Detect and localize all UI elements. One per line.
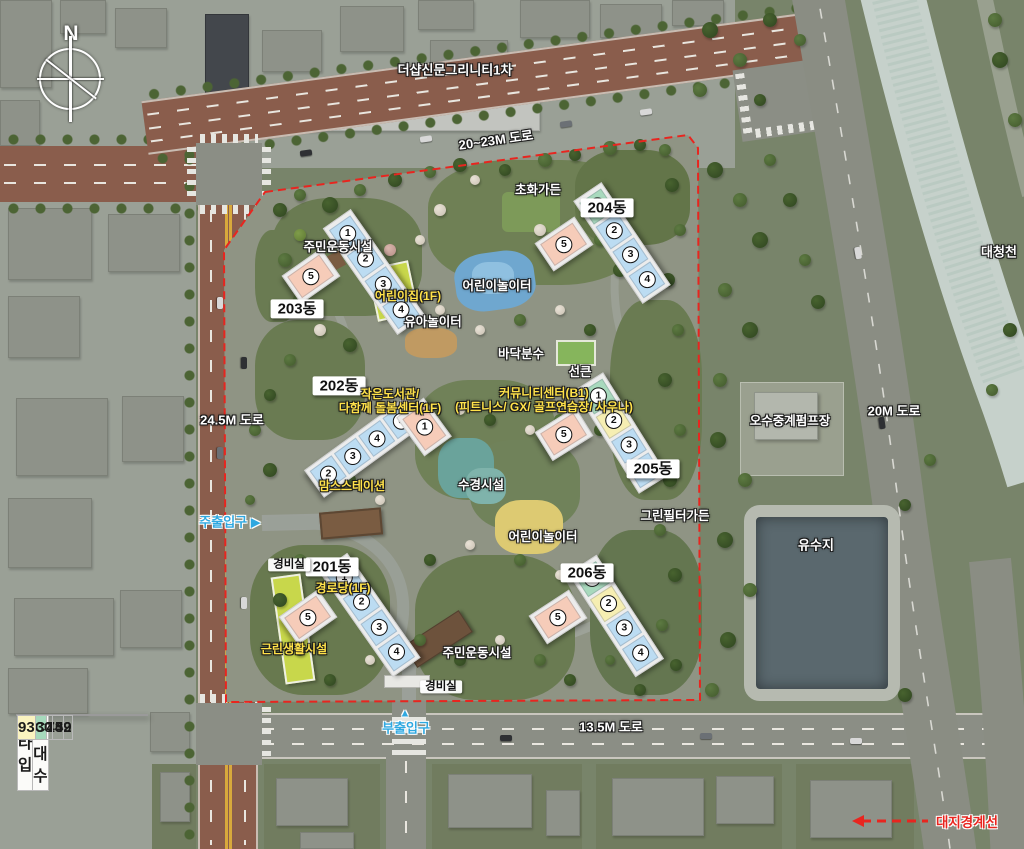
tree bbox=[720, 632, 736, 648]
label-river-daecheongcheon: 대청천 bbox=[981, 246, 1017, 261]
tree bbox=[764, 154, 776, 166]
unit-number-badge: 2 bbox=[599, 595, 616, 612]
tree bbox=[743, 583, 757, 597]
tree bbox=[414, 634, 426, 646]
label-guard-post-west: 경비실 bbox=[268, 558, 310, 571]
tree bbox=[499, 164, 511, 176]
car bbox=[217, 297, 223, 309]
tree bbox=[738, 473, 752, 487]
building-label-204: 204동 bbox=[581, 198, 634, 217]
label-pump-station: 오수중계펌프장 bbox=[750, 414, 831, 428]
tree bbox=[811, 295, 825, 309]
label-flower-garden: 초화가든 bbox=[515, 183, 561, 197]
tree bbox=[514, 314, 526, 326]
tree bbox=[475, 325, 485, 335]
car bbox=[217, 447, 223, 459]
label-small-library: 작은도서관/다함께 돌봄센터(1F) bbox=[339, 388, 442, 416]
tree bbox=[898, 688, 912, 702]
tree bbox=[484, 414, 496, 426]
car bbox=[500, 735, 512, 741]
tree bbox=[465, 540, 475, 550]
tree bbox=[1008, 113, 1022, 127]
tree bbox=[434, 204, 446, 216]
tree bbox=[514, 554, 526, 566]
compass: N bbox=[36, 22, 106, 122]
tree bbox=[659, 144, 671, 156]
label-sub-entrance-arrow-icon: ▲ bbox=[400, 708, 411, 721]
tree bbox=[924, 454, 936, 466]
tree bbox=[264, 389, 276, 401]
unit-number-badge: 3 bbox=[622, 247, 639, 264]
tree bbox=[1003, 323, 1017, 337]
tree bbox=[603, 141, 617, 155]
tree bbox=[384, 244, 396, 256]
tree bbox=[495, 635, 505, 645]
car bbox=[700, 733, 712, 739]
tree bbox=[783, 193, 797, 207]
tree bbox=[674, 424, 686, 436]
label-sports-facility-south: 주민운동시설 bbox=[442, 646, 511, 660]
tree bbox=[343, 338, 357, 352]
tree bbox=[710, 432, 726, 448]
tree bbox=[534, 654, 546, 666]
label-daycare: 어린이집(1F) bbox=[375, 290, 441, 304]
tree bbox=[584, 324, 596, 336]
unit-number-badge: 5 bbox=[300, 609, 317, 626]
label-neighbor-complex: 더샵신문그리니티1차 bbox=[398, 64, 513, 79]
unit-number-badge: 4 bbox=[369, 430, 386, 447]
tree bbox=[713, 373, 727, 387]
car bbox=[241, 597, 247, 609]
tree bbox=[702, 22, 718, 38]
label-floor-fountain: 바닥분수 bbox=[498, 347, 544, 361]
tree bbox=[654, 524, 666, 536]
unit-number-badge: 5 bbox=[550, 609, 567, 626]
tree bbox=[263, 463, 277, 477]
legend-row-93: 9330 bbox=[17, 715, 53, 740]
unit-number-badge: 3 bbox=[344, 447, 361, 464]
tree bbox=[674, 224, 686, 236]
sunken-area bbox=[556, 340, 596, 366]
tree bbox=[718, 283, 732, 297]
tree bbox=[424, 166, 436, 178]
unit-number-badge: 4 bbox=[388, 644, 405, 661]
label-toddler-playground: 유아놀이터 bbox=[404, 315, 462, 329]
tree bbox=[754, 94, 766, 106]
unit-number-badge: 2 bbox=[353, 594, 370, 611]
label-moms-station: 맘스스테이션 bbox=[319, 480, 385, 494]
tree bbox=[717, 532, 733, 548]
tree bbox=[742, 322, 758, 338]
tree bbox=[658, 373, 672, 387]
label-road-24-5m: 24.5M 도로 bbox=[200, 414, 264, 429]
tree bbox=[707, 162, 723, 178]
building-label-206: 206동 bbox=[561, 563, 614, 582]
tree bbox=[354, 184, 366, 196]
tree bbox=[294, 189, 306, 201]
unit-number-badge: 3 bbox=[620, 437, 637, 454]
tree bbox=[273, 203, 287, 217]
unit-number-badge: 3 bbox=[616, 620, 633, 637]
tree bbox=[555, 305, 565, 315]
tree bbox=[273, 593, 287, 607]
flower-garden-area bbox=[502, 192, 560, 232]
tree bbox=[693, 83, 707, 97]
unit-number-badge: 4 bbox=[638, 271, 655, 288]
label-sub-entrance: 부출입구 bbox=[382, 722, 430, 737]
tree bbox=[605, 655, 615, 665]
legend-count-cell: 30 bbox=[35, 716, 53, 740]
label-water-feature: 수경시설 bbox=[458, 478, 504, 492]
tree bbox=[670, 659, 682, 671]
tree bbox=[564, 674, 576, 686]
label-playground-south: 어린이놀이터 bbox=[508, 530, 577, 544]
label-neighborhood-facility: 근린생활시설 bbox=[261, 643, 327, 657]
tree bbox=[365, 655, 375, 665]
tree bbox=[453, 158, 467, 172]
tree bbox=[992, 52, 1008, 68]
tree bbox=[665, 178, 679, 192]
unit-number-badge: 5 bbox=[556, 426, 573, 443]
tree bbox=[525, 425, 535, 435]
unit-number-badge: 5 bbox=[556, 236, 573, 253]
tree bbox=[245, 495, 255, 505]
unit-number-badge: 5 bbox=[303, 268, 320, 285]
tree bbox=[988, 13, 1002, 27]
label-road-13-5m: 13.5M 도로 bbox=[579, 721, 643, 736]
tree bbox=[799, 254, 811, 266]
label-community-center: 커뮤니티센터(B1)(피트니스/ GX/ 골프연습장/ 사우나) bbox=[455, 387, 633, 415]
tree bbox=[415, 235, 425, 245]
tree bbox=[986, 384, 998, 396]
tree bbox=[668, 568, 682, 582]
tree bbox=[314, 324, 326, 336]
moms-station-shelter bbox=[319, 507, 383, 539]
tree bbox=[672, 324, 684, 336]
label-senior-center: 경로당(1F) bbox=[315, 582, 370, 596]
tree bbox=[569, 149, 581, 161]
tree bbox=[322, 197, 338, 213]
tree bbox=[752, 232, 768, 248]
tree bbox=[733, 193, 747, 207]
playground-south-area bbox=[495, 500, 563, 554]
label-reservoir: 유수지 bbox=[798, 539, 834, 554]
tree bbox=[899, 499, 911, 511]
legend-type-cell: 93 bbox=[18, 716, 36, 740]
label-sunken: 선큰 bbox=[568, 365, 591, 379]
tree bbox=[534, 224, 546, 236]
label-playground-north: 어린이놀이터 bbox=[462, 279, 531, 293]
tree bbox=[634, 684, 646, 696]
toddler-playground-area bbox=[405, 328, 457, 358]
tree bbox=[375, 495, 385, 505]
building-label-205: 205동 bbox=[627, 459, 680, 478]
tree bbox=[435, 305, 445, 315]
tree bbox=[763, 13, 777, 27]
unit-number-badge: 4 bbox=[632, 645, 649, 662]
tree bbox=[538, 153, 552, 167]
label-guard-post-south: 경비실 bbox=[420, 680, 462, 693]
label-green-filter-garden: 그린필터가든 bbox=[640, 509, 709, 523]
tree bbox=[278, 253, 292, 267]
building-label-201: 201동 bbox=[306, 557, 359, 576]
label-main-entrance: 주출입구 ▶ bbox=[199, 516, 260, 531]
building-label-203: 203동 bbox=[271, 299, 324, 318]
site-plan-map: 123455432112345123451234512345 201동202동2… bbox=[0, 0, 1024, 849]
tree bbox=[794, 34, 806, 46]
tree bbox=[705, 683, 719, 697]
tree bbox=[388, 173, 402, 187]
label-sports-facility-north: 주민운동시설 bbox=[303, 240, 372, 254]
tree bbox=[424, 554, 436, 566]
label-site-boundary-legend: 대지경계선 bbox=[936, 815, 998, 831]
label-road-20m: 20M 도로 bbox=[868, 405, 921, 420]
unit-number-badge: 2 bbox=[605, 222, 622, 239]
unit-number-badge: 3 bbox=[370, 619, 387, 636]
unit-type-legend-table: 타입세대수 84A45284B13984C749330 bbox=[16, 714, 148, 716]
car bbox=[241, 357, 247, 369]
tree bbox=[634, 139, 646, 151]
reservoir-pond bbox=[744, 505, 900, 701]
tree bbox=[284, 354, 296, 366]
car bbox=[850, 738, 862, 744]
unit-number-badge: 1 bbox=[416, 419, 433, 436]
tree bbox=[656, 619, 668, 631]
tree bbox=[733, 53, 747, 67]
tree bbox=[470, 175, 480, 185]
tree bbox=[324, 674, 336, 686]
